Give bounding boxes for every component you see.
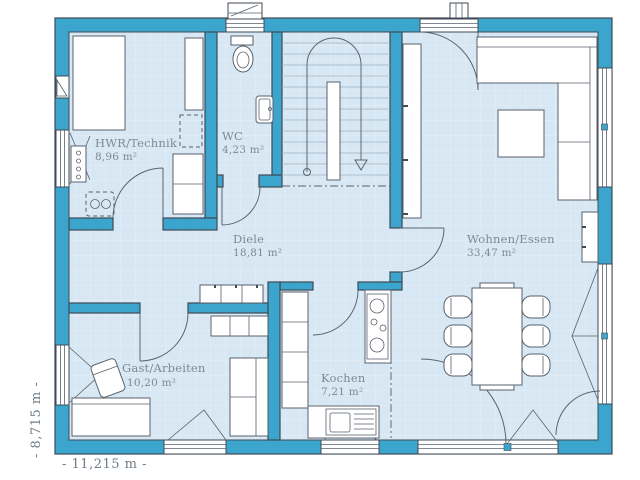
- room-area-hwr: 8,96 m²: [95, 151, 137, 163]
- room-label-wohnen: Wohnen/Essen: [467, 232, 555, 246]
- room-label-diele: Diele: [233, 232, 264, 246]
- room-area-kochen: 7,21 m²: [321, 386, 363, 398]
- room-area-wc: 4,23 m²: [222, 144, 264, 156]
- room-label-hwr: HWR/Technik: [95, 136, 178, 150]
- wc-window: [226, 3, 264, 32]
- vent-icon: [56, 76, 69, 98]
- room-label-kochen: Kochen: [321, 371, 366, 385]
- floor-plan-drawing: HWR/Technik 8,96 m² WC 4,23 m² Diele 18,…: [0, 0, 640, 480]
- room-label-gast: Gast/Arbeiten: [122, 361, 206, 375]
- floor-plan-page: HWR/Technik 8,96 m² WC 4,23 m² Diele 18,…: [0, 0, 640, 480]
- dimension-width: - 11,215 m -: [62, 457, 147, 472]
- room-label-wc: WC: [222, 129, 243, 143]
- room-area-wohnen: 33,47 m²: [467, 247, 516, 259]
- room-area-diele: 18,81 m²: [233, 247, 282, 259]
- room-area-gast: 10,20 m²: [127, 377, 176, 389]
- dimension-height: - 8,715 m -: [29, 382, 44, 458]
